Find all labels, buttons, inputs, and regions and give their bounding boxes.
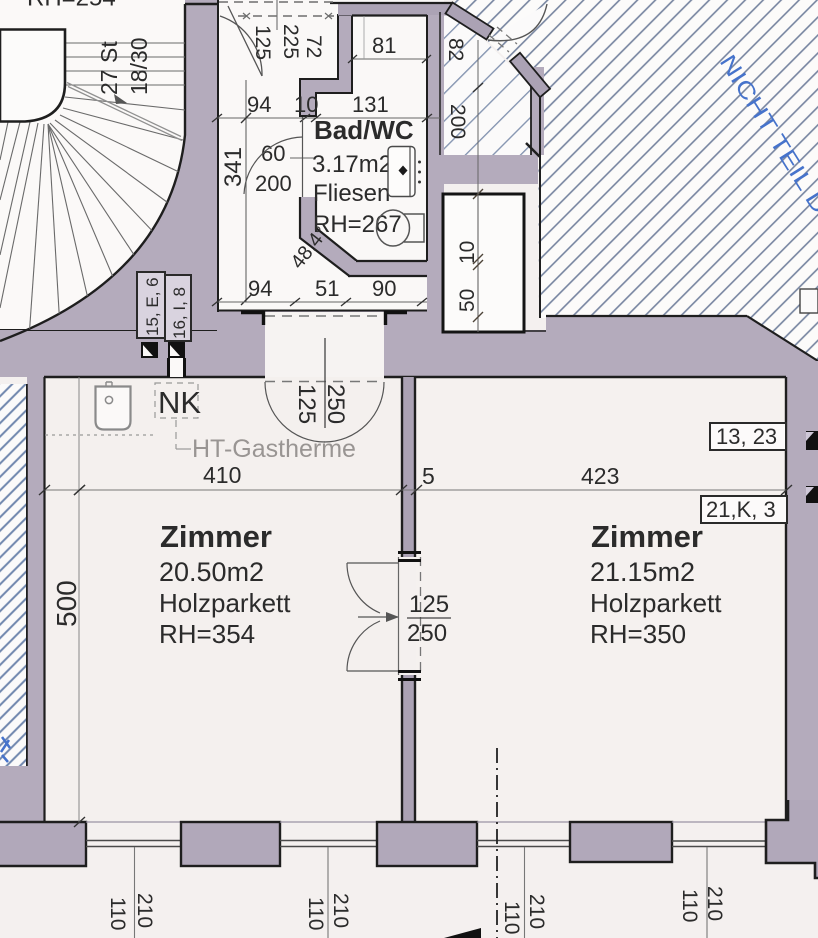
svg-text:51: 51 xyxy=(315,276,339,301)
svg-text:341: 341 xyxy=(220,147,247,187)
svg-text:50: 50 xyxy=(456,289,479,312)
svg-text:225: 225 xyxy=(279,24,302,59)
svg-text:110: 110 xyxy=(304,897,327,930)
svg-text:500: 500 xyxy=(51,580,82,627)
svg-text:110: 110 xyxy=(500,901,523,934)
svg-text:200: 200 xyxy=(446,104,469,139)
svg-text:110: 110 xyxy=(106,897,129,930)
svg-text:RH=350: RH=350 xyxy=(590,619,686,649)
svg-text:110: 110 xyxy=(678,889,701,922)
svg-text:16, I, 8: 16, I, 8 xyxy=(170,287,189,339)
svg-text:210: 210 xyxy=(133,893,156,928)
svg-text:82: 82 xyxy=(444,38,467,61)
svg-text:131: 131 xyxy=(352,92,389,117)
svg-text:RH=354: RH=354 xyxy=(159,619,255,649)
svg-text:5: 5 xyxy=(422,463,435,489)
svg-text:125: 125 xyxy=(409,591,449,618)
svg-text:20.50m2: 20.50m2 xyxy=(159,557,264,587)
svg-text:Holzparkett: Holzparkett xyxy=(590,588,722,618)
svg-text:210: 210 xyxy=(329,893,352,928)
svg-text:10: 10 xyxy=(294,92,318,117)
svg-text:3.17m2: 3.17m2 xyxy=(312,151,392,178)
svg-text:Zimmer: Zimmer xyxy=(591,519,703,554)
svg-text:410: 410 xyxy=(203,462,241,488)
svg-text:423: 423 xyxy=(581,463,619,489)
svg-text:Bad/WC: Bad/WC xyxy=(314,115,414,145)
svg-text:Zimmer: Zimmer xyxy=(160,519,272,554)
svg-text:Fliesen: Fliesen xyxy=(313,180,390,207)
svg-text:125: 125 xyxy=(293,384,320,424)
svg-text:NK: NK xyxy=(158,385,201,420)
svg-text:RH=254: RH=254 xyxy=(27,0,116,12)
svg-text:200: 200 xyxy=(255,171,292,196)
svg-text:15, E, 6: 15, E, 6 xyxy=(143,277,162,336)
svg-text:13, 23: 13, 23 xyxy=(716,424,777,449)
svg-text:250: 250 xyxy=(322,384,349,424)
svg-text:27 St: 27 St xyxy=(96,41,122,95)
svg-text:210: 210 xyxy=(525,894,548,929)
svg-text:90: 90 xyxy=(372,276,396,301)
svg-text:210: 210 xyxy=(703,886,726,921)
svg-text:18/30: 18/30 xyxy=(126,37,152,95)
svg-text:21.15m2: 21.15m2 xyxy=(590,557,695,587)
svg-text:72: 72 xyxy=(302,35,325,58)
svg-text:81: 81 xyxy=(372,33,396,58)
svg-text:125: 125 xyxy=(251,25,274,60)
svg-text:250: 250 xyxy=(407,620,447,647)
svg-text:Holzparkett: Holzparkett xyxy=(159,588,291,618)
svg-text:94: 94 xyxy=(248,276,272,301)
svg-text:HT-Gastherme: HT-Gastherme xyxy=(192,435,356,463)
svg-text:21,K, 3: 21,K, 3 xyxy=(706,497,776,522)
